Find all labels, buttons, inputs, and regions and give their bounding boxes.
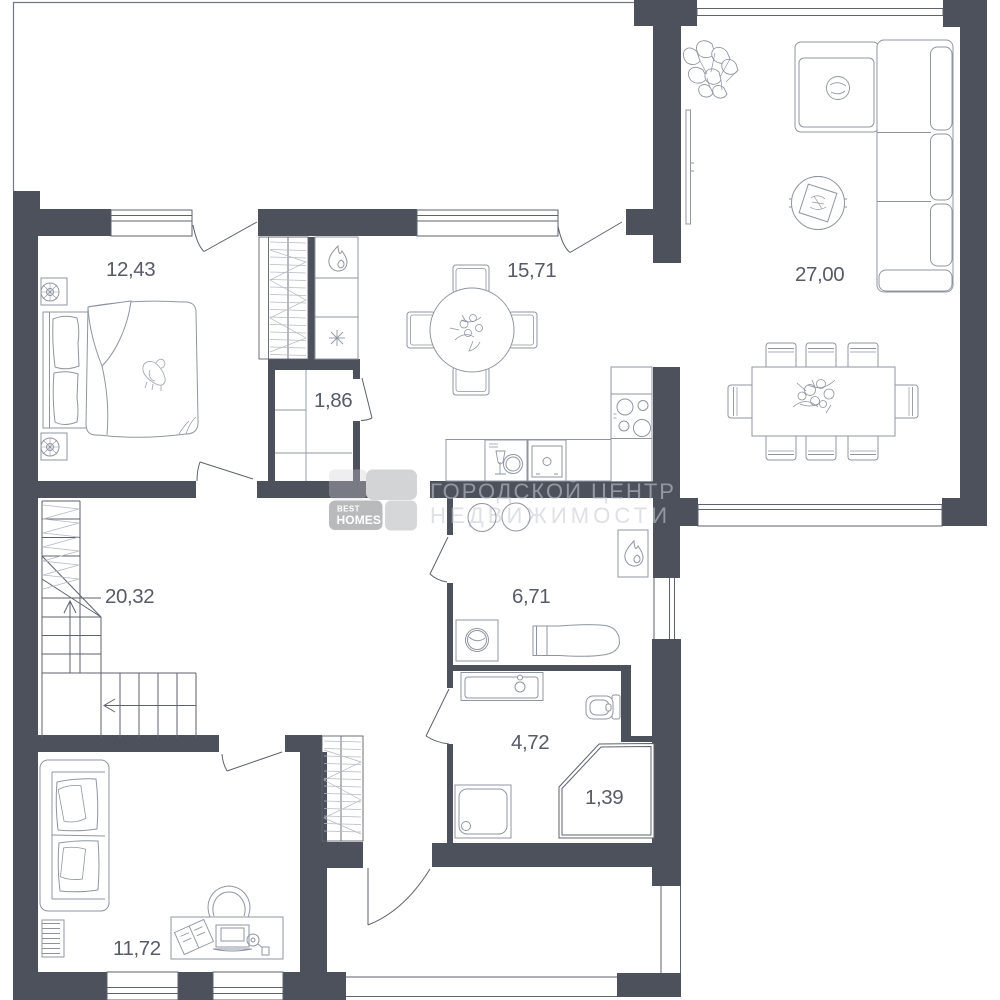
svg-text:4,72: 4,72 [511, 731, 549, 754]
svg-text:15,71: 15,71 [507, 259, 556, 282]
svg-text:НЕДВИЖИМОСТИ: НЕДВИЖИМОСТИ [430, 503, 671, 528]
svg-text:1,86: 1,86 [314, 389, 352, 412]
svg-text:12,43: 12,43 [106, 258, 155, 281]
svg-text:11,72: 11,72 [113, 937, 161, 960]
svg-text:HOMES: HOMES [337, 513, 382, 527]
svg-text:ГОРОДСКОЙ ЦЕНТР: ГОРОДСКОЙ ЦЕНТР [430, 479, 676, 504]
svg-text:1,39: 1,39 [585, 786, 623, 809]
svg-text:6,71: 6,71 [512, 585, 550, 608]
svg-text:20,32: 20,32 [105, 585, 154, 608]
svg-text:27,00: 27,00 [795, 263, 844, 286]
